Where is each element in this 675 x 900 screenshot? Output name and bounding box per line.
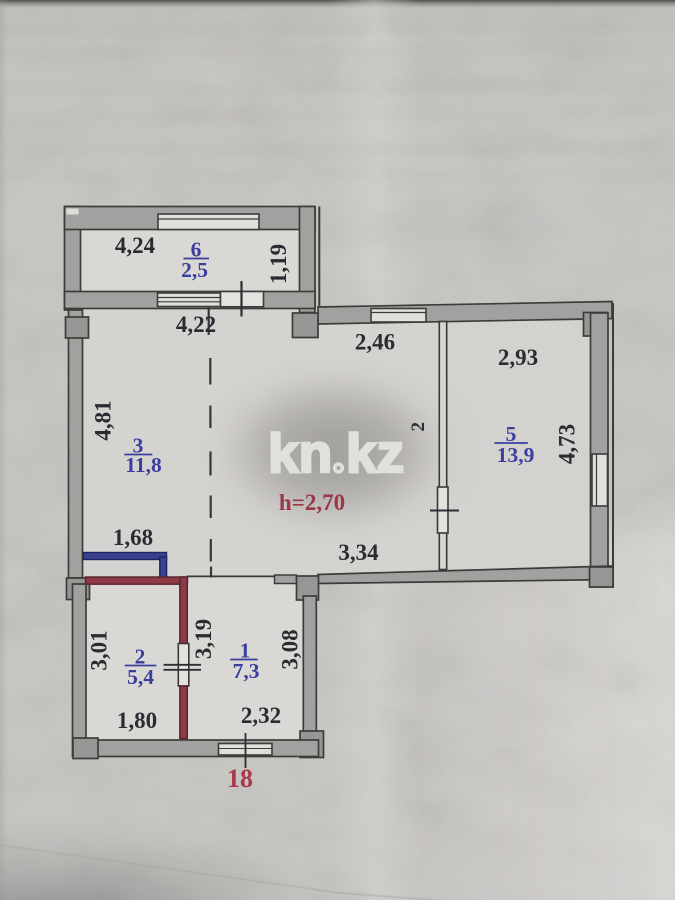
svg-text:4,73: 4,73 bbox=[555, 424, 580, 464]
svg-text:5,4: 5,4 bbox=[127, 665, 154, 689]
svg-text:4,81: 4,81 bbox=[91, 400, 116, 440]
svg-text:4,24: 4,24 bbox=[115, 233, 156, 258]
svg-text:1,80: 1,80 bbox=[117, 708, 157, 733]
svg-text:1,68: 1,68 bbox=[113, 525, 153, 550]
svg-text:2,93: 2,93 bbox=[498, 345, 538, 370]
svg-text:kz: kz bbox=[346, 422, 404, 484]
svg-text:18: 18 bbox=[227, 764, 253, 793]
svg-text:1,19: 1,19 bbox=[266, 244, 291, 284]
svg-text:kn: kn bbox=[268, 422, 332, 484]
svg-text:4,22: 4,22 bbox=[176, 312, 216, 337]
svg-text:13,9: 13,9 bbox=[497, 443, 535, 467]
svg-text:3,34: 3,34 bbox=[338, 540, 379, 565]
svg-text:2,32: 2,32 bbox=[241, 703, 281, 728]
svg-text:2,46: 2,46 bbox=[355, 330, 395, 355]
svg-text:7,3: 7,3 bbox=[233, 659, 260, 683]
svg-text:11,8: 11,8 bbox=[125, 453, 162, 477]
svg-text:2: 2 bbox=[408, 422, 429, 432]
svg-text:3,19: 3,19 bbox=[191, 619, 216, 659]
svg-text:2,5: 2,5 bbox=[181, 258, 208, 282]
svg-text:3,08: 3,08 bbox=[278, 629, 303, 669]
svg-text:h=2,70: h=2,70 bbox=[279, 490, 345, 515]
svg-text:3,01: 3,01 bbox=[87, 630, 112, 670]
